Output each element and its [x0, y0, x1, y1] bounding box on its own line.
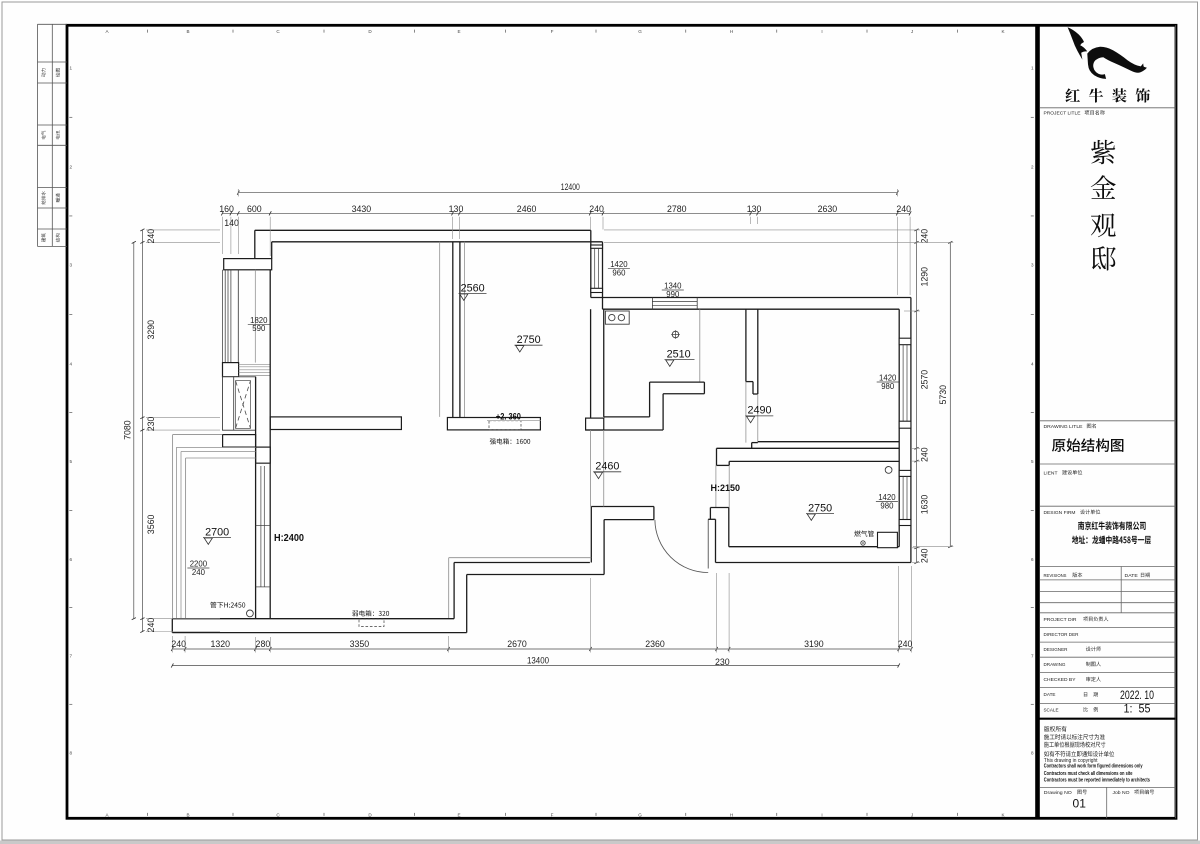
- svg-text:3290: 3290: [146, 320, 156, 340]
- svg-text:7: 7: [70, 653, 73, 658]
- svg-text:240: 240: [146, 618, 156, 633]
- svg-text:2750: 2750: [517, 334, 541, 346]
- svg-text:B: B: [186, 29, 189, 34]
- svg-text:PROJECT LITLE: PROJECT LITLE: [1044, 111, 1081, 117]
- svg-text:4: 4: [70, 362, 73, 367]
- svg-text:1: 55: 1: 55: [1124, 704, 1151, 716]
- svg-text:Job NO: Job NO: [1113, 790, 1130, 796]
- svg-text:4: 4: [1031, 362, 1034, 367]
- svg-text:2700: 2700: [205, 526, 229, 538]
- svg-text:240: 240: [898, 639, 913, 649]
- svg-text:2510: 2510: [667, 348, 691, 360]
- svg-text:REVISIONS: REVISIONS: [1044, 573, 1067, 579]
- svg-text:2460: 2460: [517, 204, 537, 214]
- svg-text:Contractors must be reported i: Contractors must be reported immediately…: [1044, 777, 1150, 783]
- svg-text:E: E: [457, 29, 460, 34]
- svg-text:240: 240: [919, 229, 929, 244]
- svg-text:DRAWING: DRAWING: [1044, 662, 1066, 668]
- svg-text:240: 240: [589, 204, 604, 214]
- svg-text:600: 600: [247, 204, 262, 214]
- svg-text:3430: 3430: [352, 204, 372, 214]
- svg-text:1: 1: [70, 65, 73, 70]
- svg-text:SCALE: SCALE: [1044, 707, 1059, 713]
- svg-text:J: J: [911, 29, 913, 34]
- svg-text:E: E: [457, 812, 460, 817]
- svg-text:240: 240: [192, 568, 206, 577]
- svg-text:590: 590: [252, 324, 266, 333]
- svg-text:2360: 2360: [645, 639, 665, 649]
- svg-text:B: B: [186, 812, 189, 817]
- svg-text:H:2150: H:2150: [711, 483, 741, 493]
- svg-text:DATE: DATE: [1044, 692, 1056, 698]
- svg-text:8: 8: [1031, 751, 1034, 756]
- svg-text:F: F: [551, 29, 554, 34]
- svg-text:DESIGN FIRM: DESIGN FIRM: [1044, 510, 1076, 516]
- svg-text:J: J: [911, 812, 913, 817]
- svg-text:2: 2: [70, 165, 73, 170]
- svg-text:5730: 5730: [938, 385, 948, 405]
- svg-text:F: F: [551, 812, 554, 817]
- svg-text:2670: 2670: [507, 639, 527, 649]
- svg-text:240: 240: [171, 639, 186, 649]
- svg-text:3350: 3350: [350, 639, 370, 649]
- svg-text:3: 3: [1031, 263, 1034, 268]
- svg-text:2630: 2630: [818, 204, 838, 214]
- svg-text:1630: 1630: [919, 495, 929, 515]
- svg-text:240: 240: [919, 548, 929, 563]
- svg-text:2490: 2490: [747, 405, 771, 417]
- svg-text:140: 140: [224, 218, 239, 228]
- svg-text:DRAWING LITLE: DRAWING LITLE: [1044, 424, 1083, 430]
- svg-text:I: I: [821, 812, 822, 817]
- svg-text:2560: 2560: [461, 282, 485, 294]
- svg-text:2780: 2780: [667, 204, 687, 214]
- svg-text:130: 130: [747, 204, 762, 214]
- svg-text:240: 240: [919, 447, 929, 462]
- svg-text:12400: 12400: [561, 182, 580, 192]
- svg-text:+2. 360: +2. 360: [496, 412, 521, 422]
- svg-text:8: 8: [70, 751, 73, 756]
- svg-text:Contractors shall work form fi: Contractors shall work form figured dime…: [1044, 764, 1143, 770]
- svg-text:240: 240: [896, 204, 911, 214]
- svg-text:H: H: [730, 812, 733, 817]
- svg-text:280: 280: [256, 639, 271, 649]
- svg-text:2750: 2750: [808, 502, 832, 514]
- svg-text:I: I: [821, 29, 822, 34]
- svg-text:PROJECT DIR: PROJECT DIR: [1044, 617, 1078, 623]
- svg-text:2: 2: [1031, 165, 1034, 170]
- svg-text:980: 980: [880, 502, 894, 511]
- svg-text:DATE: DATE: [1125, 573, 1138, 579]
- svg-text:13400: 13400: [527, 655, 549, 665]
- svg-text:2570: 2570: [919, 370, 929, 390]
- svg-text:3190: 3190: [804, 639, 824, 649]
- svg-text:3: 3: [70, 263, 73, 268]
- svg-text:G: G: [638, 29, 642, 34]
- svg-text:DESIGNER: DESIGNER: [1044, 647, 1069, 653]
- svg-text:2022. 10: 2022. 10: [1120, 688, 1154, 702]
- svg-text:230: 230: [146, 416, 156, 431]
- svg-text:CHECKED BY: CHECKED BY: [1044, 677, 1077, 683]
- svg-text:Contractors must check all dim: Contractors must check all dimensions on…: [1044, 771, 1133, 777]
- svg-text:130: 130: [449, 204, 464, 214]
- svg-text:5: 5: [70, 459, 73, 464]
- svg-text:H: H: [730, 29, 733, 34]
- svg-text:160: 160: [219, 204, 234, 214]
- svg-text:960: 960: [612, 269, 626, 278]
- svg-text:240: 240: [146, 229, 156, 244]
- svg-text:G: G: [638, 812, 642, 817]
- svg-text:01: 01: [1073, 796, 1087, 810]
- svg-text:7: 7: [1031, 653, 1034, 658]
- svg-text:1290: 1290: [919, 267, 929, 287]
- svg-text:7080: 7080: [122, 420, 132, 440]
- svg-text:DIRECTOR DER: DIRECTOR DER: [1044, 632, 1080, 638]
- svg-text:1: 1: [1031, 65, 1034, 70]
- svg-text:2460: 2460: [595, 461, 619, 473]
- svg-text:3560: 3560: [146, 515, 156, 535]
- svg-text:990: 990: [666, 290, 680, 299]
- svg-text:6: 6: [1031, 557, 1034, 562]
- svg-text:LIENT: LIENT: [1044, 470, 1058, 476]
- svg-text:Drawing NO: Drawing NO: [1044, 790, 1072, 796]
- svg-text:5: 5: [1031, 459, 1034, 464]
- svg-text:6: 6: [70, 557, 73, 562]
- svg-text:1320: 1320: [211, 639, 231, 649]
- svg-text:980: 980: [881, 382, 895, 391]
- svg-text:H:2400: H:2400: [274, 533, 304, 544]
